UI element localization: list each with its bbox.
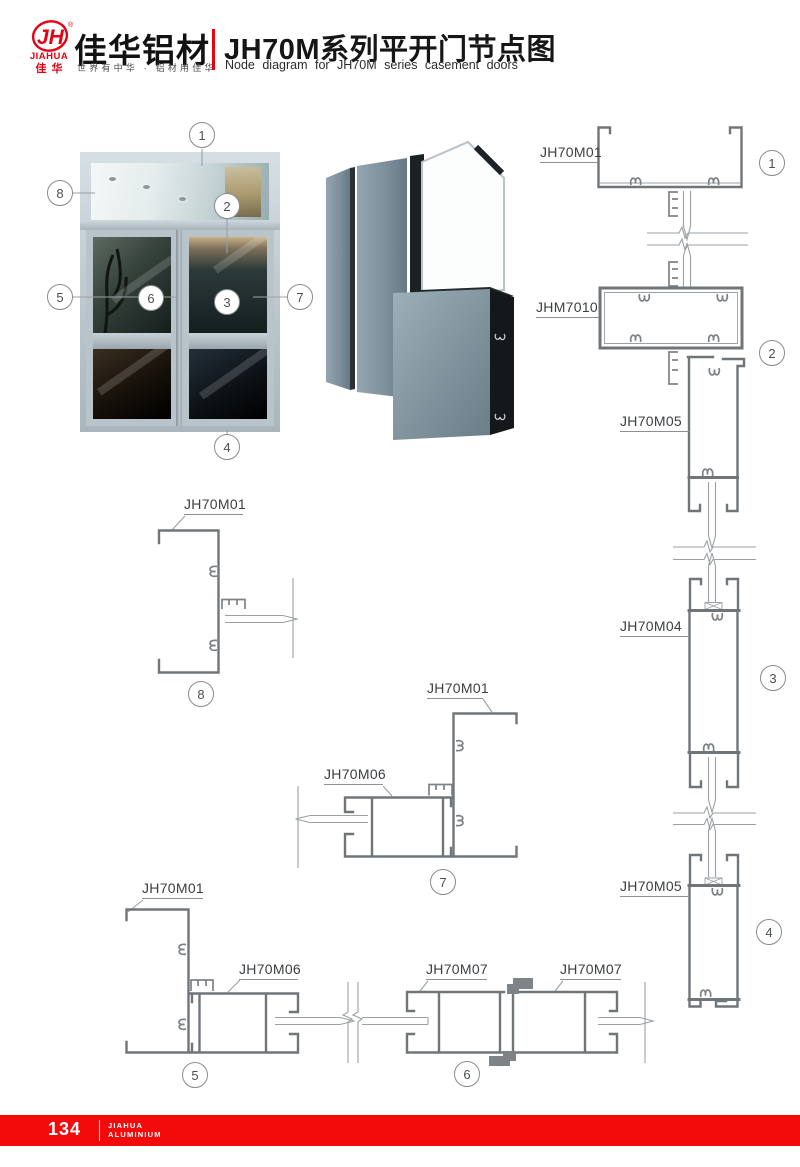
node-callout-8: 8 <box>188 681 214 707</box>
photo-callout-3: 3 <box>214 289 240 315</box>
profile-label: JH70M06 <box>324 766 383 785</box>
node1-drawing <box>599 128 749 251</box>
node-drawings <box>0 0 800 1167</box>
photo-callout-6: 6 <box>138 285 164 311</box>
footer-brand: JIAHUA ALUMINIUM <box>108 1122 162 1139</box>
node3-drawing <box>673 553 756 830</box>
profile-label: JH70M01 <box>184 496 243 515</box>
photo-callout-8: 8 <box>47 180 73 206</box>
profile-label: JH70M01 <box>540 144 598 163</box>
catalog-page: JH ® JIAHUA 佳华 佳华铝材 世界有中华 · 铝材用佳华 JH70M系… <box>0 0 800 1167</box>
footer-divider <box>99 1120 100 1141</box>
node2b-drawing <box>673 469 756 564</box>
node-callout-4: 4 <box>756 919 782 945</box>
photo-leader-lines <box>73 149 287 434</box>
footer-brand-line2: ALUMINIUM <box>108 1131 162 1140</box>
node4-drawing <box>689 818 739 1007</box>
profile-label: JHM7010 <box>536 299 599 318</box>
node8-drawing <box>159 516 298 673</box>
photo-callout-2: 2 <box>214 193 240 219</box>
photo-callout-7: 7 <box>287 284 313 310</box>
profile-label: JH70M01 <box>142 880 203 899</box>
profile-label: JH70M07 <box>560 961 621 980</box>
node-callout-5: 5 <box>182 1062 208 1088</box>
photo-callout-5: 5 <box>47 284 73 310</box>
node-callout-2: 2 <box>759 340 785 366</box>
node2-drawing <box>600 243 744 477</box>
node5-drawing <box>127 900 363 1063</box>
node-callout-6: 6 <box>454 1061 480 1087</box>
node-callout-3: 3 <box>760 665 786 691</box>
node-callout-7: 7 <box>430 869 456 895</box>
node6-drawing <box>362 978 653 1066</box>
photo-callout-4: 4 <box>214 434 240 460</box>
profile-label: JH70M06 <box>239 961 298 980</box>
photo-callout-1: 1 <box>189 122 215 148</box>
profile-label: JH70M05 <box>620 878 689 897</box>
profile-label: JH70M01 <box>427 680 483 699</box>
profile-label: JH70M04 <box>620 618 689 637</box>
profile-label: JH70M07 <box>426 961 487 980</box>
profile-label: JH70M05 <box>620 413 689 432</box>
page-number: 134 <box>48 1119 81 1140</box>
node-callout-1: 1 <box>759 150 785 176</box>
